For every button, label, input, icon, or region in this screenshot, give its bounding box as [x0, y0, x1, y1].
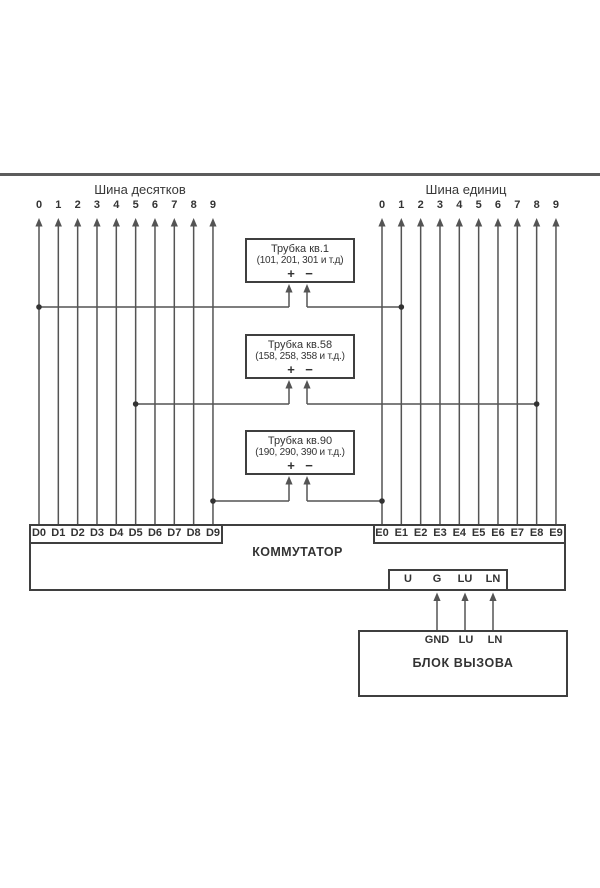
units-bus-digit-2: 2 [411, 199, 431, 211]
units-bus-digit-1: 1 [391, 199, 411, 211]
units-bus-arrow-icon-7 [514, 218, 521, 227]
tens-bus-arrow-icon-8 [190, 218, 197, 227]
handset-2-tens-junction-dot [133, 401, 139, 407]
handset-subtitle: (158, 258, 358 и т.д.) [247, 351, 353, 362]
call-block-label: БЛОК ВЫЗОВА [358, 656, 568, 670]
aux-terminal-G: G [424, 573, 450, 585]
handset-minus-terminal: − [301, 458, 317, 473]
tens-bus-arrow-icon-3 [93, 218, 100, 227]
aux-terminal-LN: LN [480, 573, 506, 585]
handset-minus-terminal: − [301, 362, 317, 377]
terminal-D9: D9 [200, 527, 226, 539]
handset-subtitle: (190, 290, 390 и т.д.) [247, 447, 353, 458]
units-bus-digit-0: 0 [372, 199, 392, 211]
units-bus-digit-7: 7 [507, 199, 527, 211]
tens-bus-arrow-icon-0 [35, 218, 42, 227]
tens-bus-arrow-icon-7 [171, 218, 178, 227]
tens-bus-digit-2: 2 [68, 199, 88, 211]
units-bus-arrow-icon-0 [378, 218, 385, 227]
units-bus-digit-9: 9 [546, 199, 566, 211]
handset-box-2: Трубка кв.58(158, 258, 358 и т.д.)+− [245, 334, 355, 379]
units-bus-arrow-icon-4 [456, 218, 463, 227]
call-terminal-LN: LN [479, 634, 511, 646]
tens-bus-arrow-icon-4 [113, 218, 120, 227]
call-terminal-LU: LU [450, 634, 482, 646]
tens-bus-digit-0: 0 [29, 199, 49, 211]
units-bus-arrow-icon-2 [417, 218, 424, 227]
units-bus-digit-6: 6 [488, 199, 508, 211]
handset-title: Трубка кв.58 [247, 339, 353, 351]
tens-bus-digit-3: 3 [87, 199, 107, 211]
commutator-label: КОММУТАТОР [29, 545, 566, 559]
units-bus-arrow-icon-6 [494, 218, 501, 227]
tens-bus-digit-8: 8 [184, 199, 204, 211]
aux-terminal-U: U [395, 573, 421, 585]
tens-bus-digit-1: 1 [48, 199, 68, 211]
handset-title: Трубка кв.90 [247, 435, 353, 447]
handset-3-units-junction-dot [379, 498, 385, 504]
handset-plus-terminal: + [283, 458, 299, 473]
handset-box-3: Трубка кв.90(190, 290, 390 и т.д.)+− [245, 430, 355, 475]
handset-title: Трубка кв.1 [247, 243, 353, 255]
tens-bus-arrow-icon-1 [55, 218, 62, 227]
handset-3-minus-arrow-icon [303, 476, 310, 485]
handset-minus-terminal: − [301, 266, 317, 281]
call-terminal-GND: GND [421, 634, 453, 646]
call-wire-arrow-icon-LU [461, 593, 468, 602]
handset-1-tens-junction-dot [36, 304, 42, 310]
units-bus-arrow-icon-5 [475, 218, 482, 227]
units-bus-digit-3: 3 [430, 199, 450, 211]
handset-1-minus-arrow-icon [303, 284, 310, 293]
tens-bus-digit-6: 6 [145, 199, 165, 211]
tens-bus-digit-4: 4 [106, 199, 126, 211]
units-bus-arrow-icon-3 [436, 218, 443, 227]
units-bus-arrow-icon-1 [398, 218, 405, 227]
call-wire-arrow-icon-LN [489, 593, 496, 602]
handset-2-units-junction-dot [534, 401, 540, 407]
tens-bus-digit-5: 5 [126, 199, 146, 211]
handset-1-plus-arrow-icon [285, 284, 292, 293]
tens-bus-digit-9: 9 [203, 199, 223, 211]
units-bus-digit-8: 8 [527, 199, 547, 211]
handset-plus-terminal: + [283, 362, 299, 377]
terminal-E9: E9 [543, 527, 569, 539]
handset-1-units-junction-dot [399, 304, 405, 310]
tens-bus-arrow-icon-5 [132, 218, 139, 227]
handset-plus-terminal: + [283, 266, 299, 281]
tens-bus-arrow-icon-2 [74, 218, 81, 227]
tens-bus-digit-7: 7 [164, 199, 184, 211]
handset-2-plus-arrow-icon [285, 380, 292, 389]
tens-bus-arrow-icon-9 [209, 218, 216, 227]
units-bus-arrow-icon-9 [552, 218, 559, 227]
units-bus-digit-5: 5 [469, 199, 489, 211]
handset-box-1: Трубка кв.1(101, 201, 301 и т.д)+− [245, 238, 355, 283]
units-bus-digit-4: 4 [449, 199, 469, 211]
handset-3-tens-junction-dot [210, 498, 216, 504]
intercom-wiring-diagram: Шина десятков Шина единиц КОММУТАТОР БЛО… [0, 0, 600, 888]
handset-2-minus-arrow-icon [303, 380, 310, 389]
tens-bus-arrow-icon-6 [151, 218, 158, 227]
call-wire-arrow-icon-GND [433, 593, 440, 602]
units-bus-arrow-icon-8 [533, 218, 540, 227]
handset-subtitle: (101, 201, 301 и т.д) [247, 255, 353, 266]
handset-3-plus-arrow-icon [285, 476, 292, 485]
aux-terminal-LU: LU [452, 573, 478, 585]
